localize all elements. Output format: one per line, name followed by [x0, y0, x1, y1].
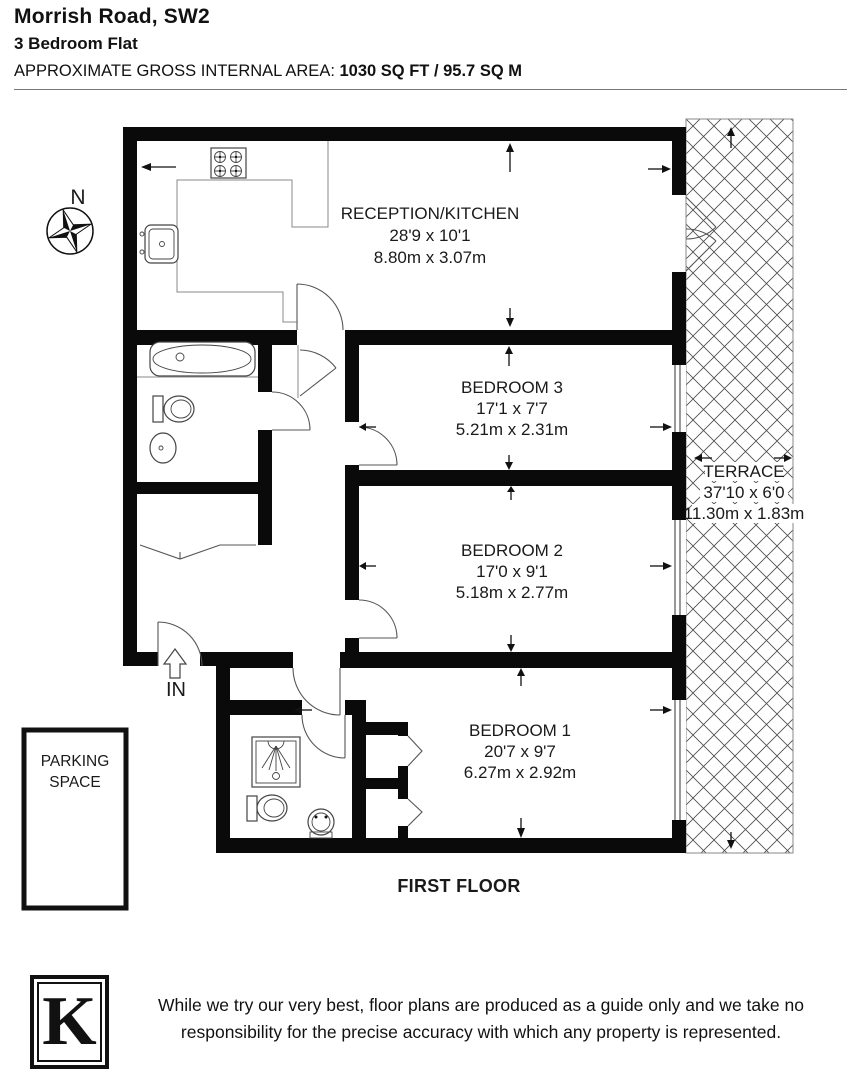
room-dim-metric: 6.27m x 2.92m — [464, 763, 576, 782]
entrance: IN — [164, 649, 186, 701]
brand-logo: K — [30, 975, 109, 1069]
kitchen-counter — [177, 141, 328, 322]
room-name: BEDROOM 1 — [469, 721, 571, 740]
footer: K While we try our very best, floor plan… — [0, 962, 859, 1080]
bathtub-icon — [137, 342, 258, 377]
room-dim-imperial: 37'10 x 6'0 — [703, 483, 784, 502]
shower-icon — [252, 737, 300, 787]
basin-icon — [150, 433, 176, 463]
compass-icon: N — [42, 186, 97, 259]
room-label-bedroom3: BEDROOM 3 17'1 x 7'7 5.21m x 2.31m — [456, 378, 568, 439]
toilet-icon — [153, 396, 194, 422]
area-value: 1030 SQ FT / 95.7 SQ M — [340, 62, 523, 80]
page-title: Morrish Road, SW2 — [14, 5, 847, 29]
room-dim-imperial: 17'1 x 7'7 — [476, 399, 548, 418]
room-name: BEDROOM 2 — [461, 541, 563, 560]
floor-plan: N IN PARKING SPACE RECEPTION/KITCHEN 28'… — [0, 0, 859, 1080]
disclaimer-line2: responsibility for the precise accuracy … — [115, 1019, 847, 1046]
floorplan-page: Morrish Road, SW2 3 Bedroom Flat APPROXI… — [0, 0, 859, 1080]
parking-label-line2: SPACE — [49, 774, 100, 791]
room-dim-metric: 5.21m x 2.31m — [456, 420, 568, 439]
floor-label: FIRST FLOOR — [397, 876, 520, 896]
room-name: RECEPTION/KITCHEN — [341, 204, 520, 223]
header-divider — [14, 89, 847, 90]
room-name: TERRACE — [703, 462, 784, 481]
area-line: APPROXIMATE GROSS INTERNAL AREA: 1030 SQ… — [14, 62, 847, 81]
page-subtitle: 3 Bedroom Flat — [14, 34, 847, 54]
entrance-label: IN — [166, 679, 186, 701]
disclaimer: While we try our very best, floor plans … — [115, 992, 847, 1046]
room-label-bedroom1: BEDROOM 1 20'7 x 9'7 6.27m x 2.92m — [464, 721, 576, 782]
room-dim-metric: 11.30m x 1.83m — [684, 504, 805, 523]
toilet-icon-2 — [247, 795, 287, 821]
room-dim-imperial: 28'9 x 10'1 — [389, 226, 470, 245]
kitchen-sink-icon — [140, 225, 178, 263]
disclaimer-line1: While we try our very best, floor plans … — [115, 992, 847, 1019]
brand-logo-letter: K — [37, 982, 102, 1062]
parking-space: PARKING SPACE — [24, 730, 126, 908]
room-label-reception: RECEPTION/KITCHEN 28'9 x 10'1 8.80m x 3.… — [341, 204, 520, 267]
room-dim-metric: 5.18m x 2.77m — [456, 583, 568, 602]
entrance-arrow-icon — [164, 649, 186, 678]
stove-icon — [211, 148, 246, 178]
compass-north-label: N — [70, 186, 85, 209]
room-dim-metric: 8.80m x 3.07m — [374, 248, 486, 267]
room-name: BEDROOM 3 — [461, 378, 563, 397]
area-label: APPROXIMATE GROSS INTERNAL AREA: — [14, 62, 340, 80]
room-dim-imperial: 20'7 x 9'7 — [484, 742, 556, 761]
parking-label-line1: PARKING — [41, 753, 110, 770]
room-dim-imperial: 17'0 x 9'1 — [476, 562, 548, 581]
basin-icon-2 — [308, 809, 334, 838]
room-label-bedroom2: BEDROOM 2 17'0 x 9'1 5.18m x 2.77m — [456, 541, 568, 602]
header: Morrish Road, SW2 3 Bedroom Flat APPROXI… — [14, 5, 847, 90]
